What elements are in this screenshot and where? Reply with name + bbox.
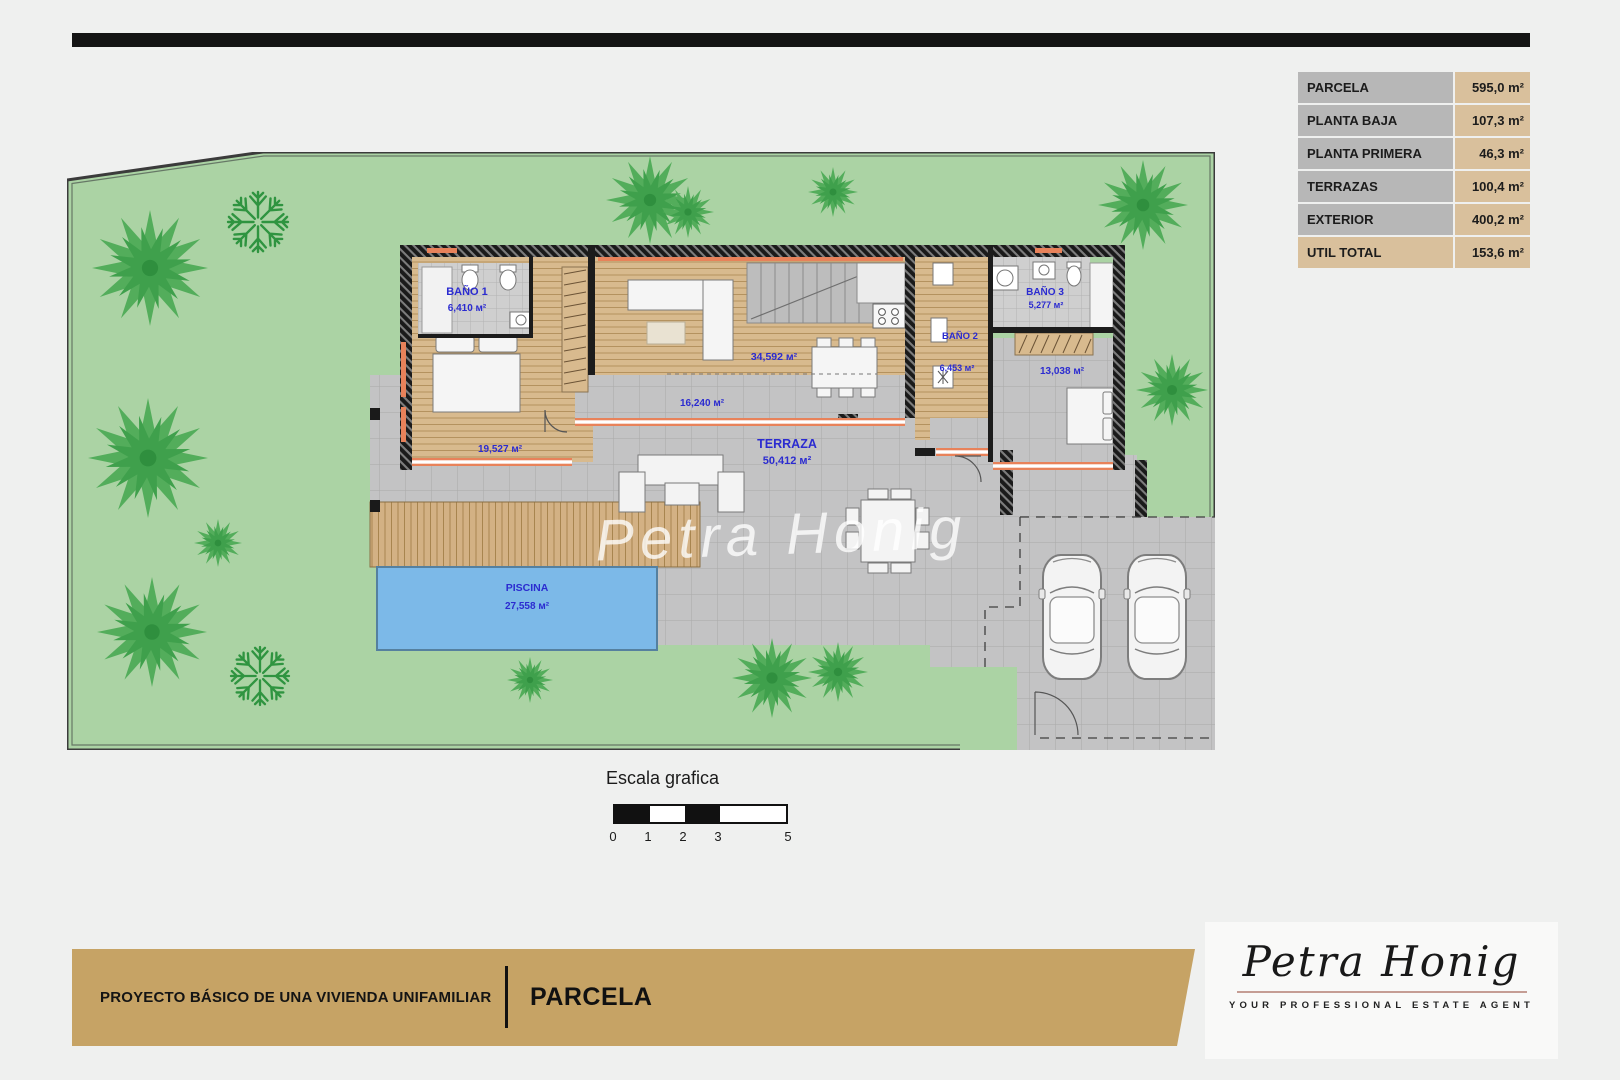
site-plan: BAÑO 1 6,410 м² 19,527 м² 34,592 м² 16,2…: [67, 152, 1215, 750]
table-row: UTIL TOTAL 153,6 m²: [1298, 237, 1530, 268]
logo-underline: [1237, 991, 1527, 993]
title-divider: [505, 966, 508, 1028]
table-row-label: PLANTA PRIMERA: [1298, 138, 1453, 169]
scale-segment: [615, 806, 650, 822]
agency-logo-name: Petra Honig: [1205, 936, 1558, 988]
table-row-label: PLANTA BAJA: [1298, 105, 1453, 136]
project-title: PROYECTO BÁSICO DE UNA VIVIENDA UNIFAMIL…: [100, 949, 491, 1046]
table-row: PLANTA BAJA 107,3 m²: [1298, 105, 1530, 136]
table-row-value: 400,2 m²: [1455, 204, 1530, 235]
agency-logo: Petra Honig YOUR PROFESSIONAL ESTATE AGE…: [1205, 922, 1558, 1059]
table-row: PLANTA PRIMERA 46,3 m²: [1298, 138, 1530, 169]
sink-icon: [510, 312, 532, 328]
scale-title: Escala grafica: [606, 768, 719, 789]
bano2-label: BAÑO 2: [942, 331, 978, 342]
terrace-label: TERRAZA: [757, 437, 817, 451]
table-row-label: UTIL TOTAL: [1298, 237, 1453, 268]
table-row-value: 46,3 m²: [1455, 138, 1530, 169]
bedroom1-area: 19,527 м²: [478, 444, 523, 455]
bano3-area: 5,277 м²: [1029, 300, 1064, 310]
scale-tick: 1: [637, 829, 659, 844]
table-row-label: TERRAZAS: [1298, 171, 1453, 202]
pool-area: 27,558 м²: [505, 601, 550, 612]
lawn-patch: [960, 667, 1017, 750]
stove-icon: [873, 304, 905, 328]
table-row: TERRAZAS 100,4 m²: [1298, 171, 1530, 202]
scale-bar: [613, 804, 788, 824]
table-row: EXTERIOR 400,2 m²: [1298, 204, 1530, 235]
living-area: 34,592 м²: [751, 351, 798, 363]
wardrobe-bedroom2: [1015, 333, 1093, 355]
wardrobe-icon: [562, 267, 588, 392]
rug: [647, 322, 685, 344]
watermark: Petra Honig: [594, 496, 968, 574]
table-row-label: EXTERIOR: [1298, 204, 1453, 235]
agency-logo-tagline: YOUR PROFESSIONAL ESTATE AGENT: [1205, 1000, 1558, 1011]
top-rule-bar: [72, 33, 1530, 47]
kitchen-counter: [857, 263, 905, 303]
shower-bano3: [1090, 263, 1113, 330]
table-row-value: 153,6 m²: [1455, 237, 1530, 268]
pool-label: PISCINA: [506, 582, 549, 594]
bedroom2-area: 13,038 м²: [1040, 366, 1085, 377]
scale-tick: 0: [602, 829, 624, 844]
hall-area: 16,240 м²: [680, 398, 725, 409]
terrace-area: 50,412 м²: [763, 455, 812, 467]
bano1-label: BAÑO 1: [446, 285, 488, 298]
dining-table-indoor: [812, 338, 877, 397]
washer-icon: [992, 266, 1018, 290]
car-icon: [1039, 555, 1105, 679]
bed-bedroom2: [1067, 388, 1113, 444]
scale-segment: [685, 806, 720, 822]
shower-bano1: [422, 267, 452, 333]
scale-tick: 5: [777, 829, 799, 844]
car-icon: [1124, 555, 1190, 679]
bano3-label: BAÑO 3: [1026, 285, 1064, 298]
table-row-value: 595,0 m²: [1455, 72, 1530, 103]
scale-tick: 2: [672, 829, 694, 844]
bano2-area: 6,453 м²: [940, 363, 975, 373]
areas-table: PARCELA 595,0 m² PLANTA BAJA 107,3 m² PL…: [1298, 72, 1530, 270]
plan-sheet: { "areas_table": { "rows": [ {"label":"P…: [0, 0, 1620, 1080]
scale-tick: 3: [707, 829, 729, 844]
table-row: PARCELA 595,0 m²: [1298, 72, 1530, 103]
bano1-area: 6,410 м²: [448, 303, 487, 314]
table-row-value: 100,4 m²: [1455, 171, 1530, 202]
table-row-label: PARCELA: [1298, 72, 1453, 103]
table-row-value: 107,3 m²: [1455, 105, 1530, 136]
sheet-title: PARCELA: [530, 949, 652, 1046]
